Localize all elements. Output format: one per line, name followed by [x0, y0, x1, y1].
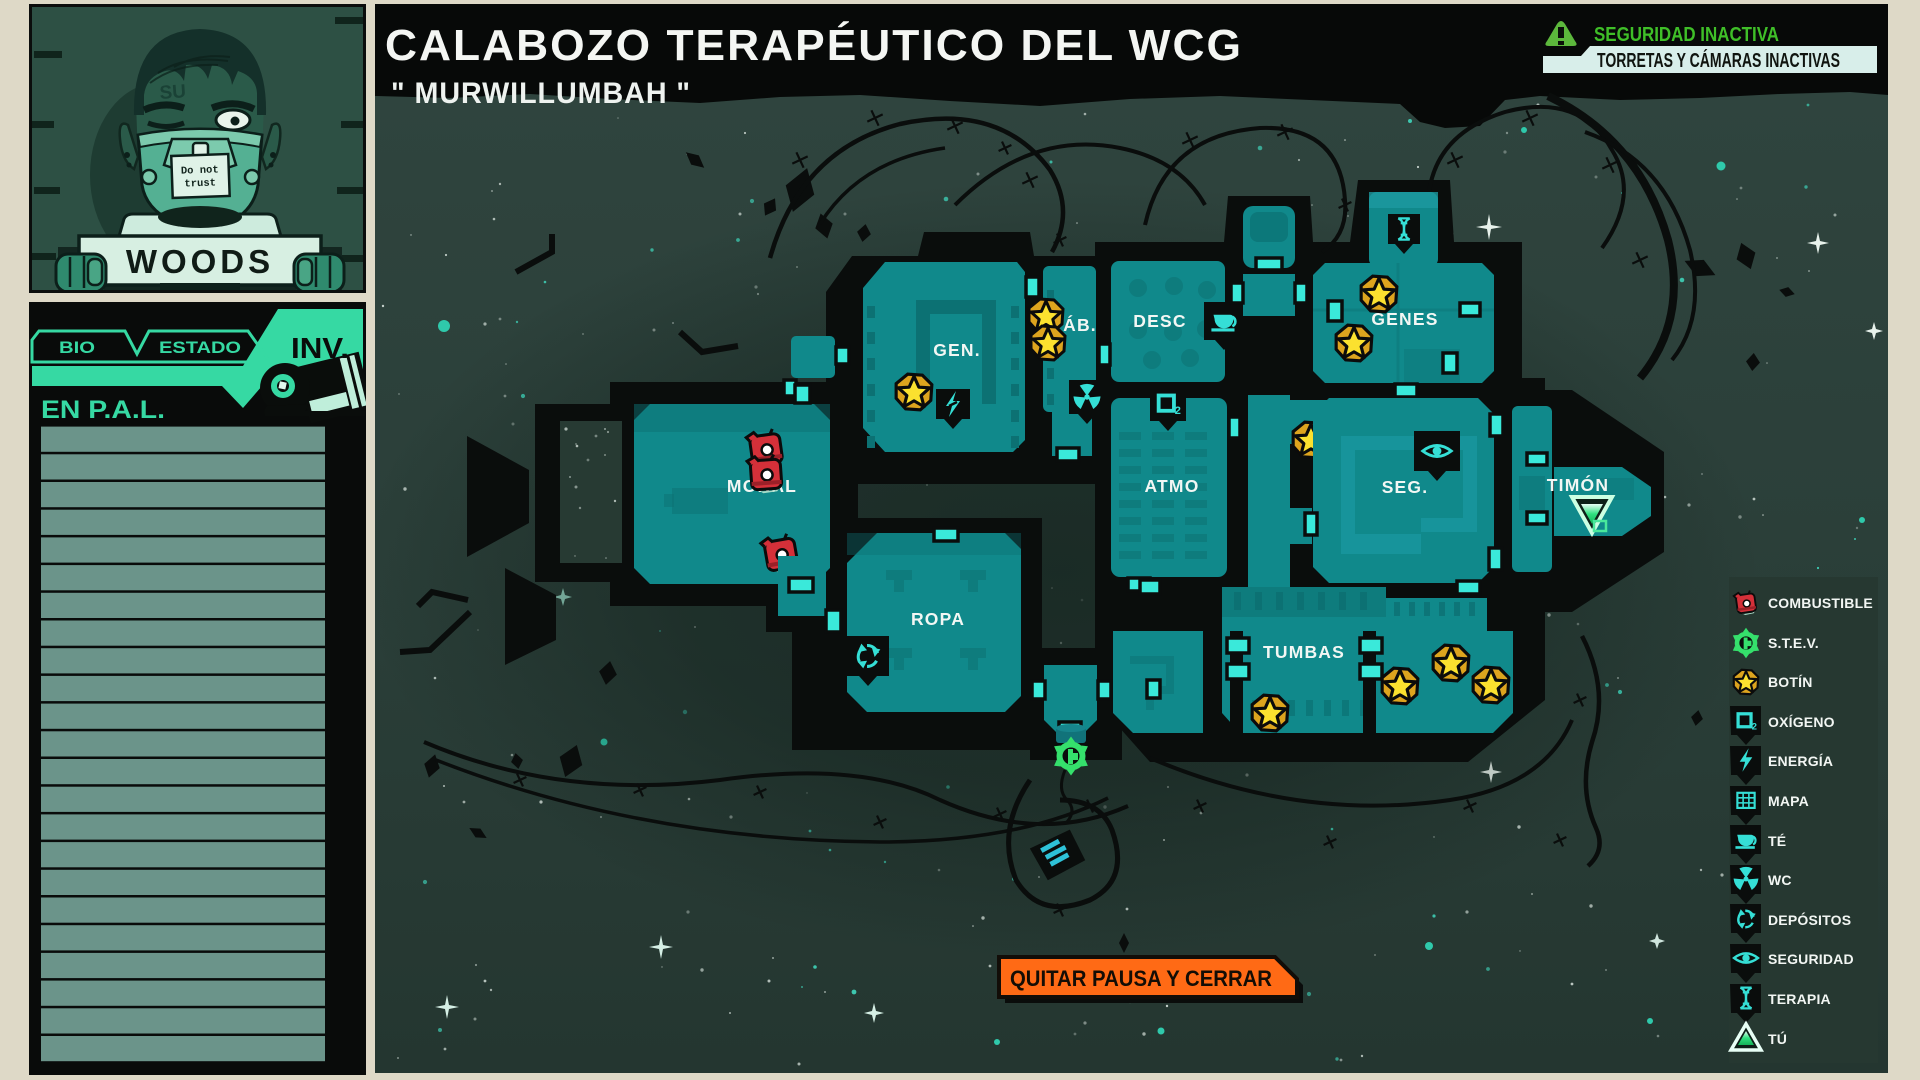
svg-text:WOODS: WOODS [126, 243, 274, 280]
svg-text:OXÍGENO: OXÍGENO [1768, 714, 1835, 730]
svg-text:TIMÓN: TIMÓN [1547, 474, 1609, 495]
svg-text:S.T.E.V.: S.T.E.V. [1768, 635, 1819, 651]
svg-text:TÚ: TÚ [1768, 1030, 1787, 1047]
svg-text:SEG.: SEG. [1382, 477, 1429, 497]
svg-text:ROPA: ROPA [911, 609, 965, 629]
svg-text:SEGURIDAD: SEGURIDAD [1768, 951, 1854, 967]
svg-text:DESC: DESC [1133, 311, 1186, 331]
svg-text:EN P.A.L.: EN P.A.L. [41, 396, 165, 424]
svg-text:COMBUSTIBLE: COMBUSTIBLE [1768, 595, 1873, 611]
svg-text:ATMO: ATMO [1144, 476, 1199, 496]
svg-text:SU: SU [159, 81, 187, 104]
svg-text:MAPA: MAPA [1768, 793, 1809, 809]
svg-text:WC: WC [1768, 872, 1792, 888]
svg-text:Do not: Do not [181, 164, 219, 177]
svg-text:ENERGÍA: ENERGÍA [1768, 753, 1833, 769]
svg-text:BOTÍN: BOTÍN [1768, 674, 1813, 690]
svg-text:CALABOZO TERAPÉUTICO DEL WCG: CALABOZO TERAPÉUTICO DEL WCG [385, 20, 1243, 70]
svg-text:" MURWILLUMBAH ": " MURWILLUMBAH " [391, 77, 691, 110]
svg-text:2: 2 [1752, 722, 1757, 732]
svg-text:TÉ: TÉ [1768, 833, 1786, 849]
svg-text:ESTADO: ESTADO [159, 338, 241, 357]
svg-text:INV.: INV. [291, 333, 349, 365]
svg-text:QUITAR PAUSA Y CERRAR: QUITAR PAUSA Y CERRAR [1010, 966, 1272, 991]
svg-text:GEN.: GEN. [933, 340, 981, 360]
svg-text:TUMBAS: TUMBAS [1263, 642, 1345, 662]
svg-text:2: 2 [1175, 405, 1181, 417]
svg-text:ÁB.: ÁB. [1063, 314, 1097, 335]
svg-text:TORRETAS Y CÁMARAS INACTIVAS: TORRETAS Y CÁMARAS INACTIVAS [1597, 49, 1840, 72]
svg-text:TERAPIA: TERAPIA [1768, 991, 1831, 1007]
svg-text:SEGURIDAD INACTIVA: SEGURIDAD INACTIVA [1594, 24, 1779, 46]
svg-text:BIO: BIO [59, 338, 95, 357]
svg-text:DEPÓSITOS: DEPÓSITOS [1768, 911, 1851, 928]
svg-text:trust: trust [184, 177, 216, 190]
